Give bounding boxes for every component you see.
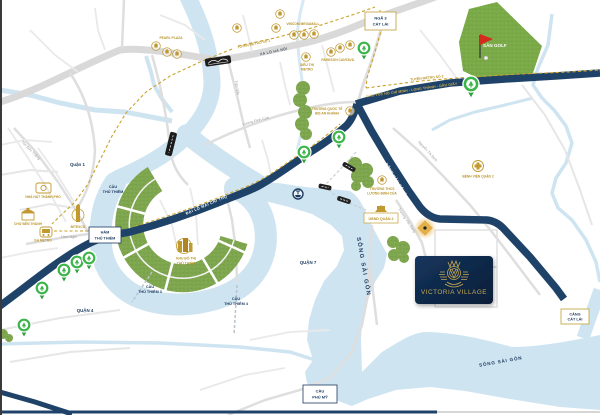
svg-text:SIÊU THỊ: SIÊU THỊ [300, 62, 314, 67]
svg-text:TRƯỜNG QUỐC TẾ: TRƯỜNG QUỐC TẾ [312, 106, 344, 111]
svg-text:CHỢ BẾN THÀNH: CHỢ BẾN THÀNH [14, 221, 43, 226]
svg-text:PHÚ MỸ: PHÚ MỸ [312, 395, 328, 400]
svg-text:NHÀ HÁT THÀNH PHỐ: NHÀ HÁT THÀNH PHỐ [25, 194, 61, 199]
svg-text:CẦU: CẦU [146, 285, 154, 289]
svg-text:QUẬN 7: QUẬN 7 [300, 260, 317, 265]
svg-text:BIS AN KHÁNH: BIS AN KHÁNH [315, 111, 339, 116]
svg-text:SÂN GOLF: SÂN GOLF [483, 42, 507, 48]
svg-text:CÁT LÁI: CÁT LÁI [373, 22, 389, 27]
svg-text:Hàm Nghi: Hàm Nghi [61, 235, 77, 239]
svg-text:CẢNG: CẢNG [569, 312, 580, 317]
svg-text:CÁT LÁI: CÁT LÁI [568, 317, 583, 322]
svg-text:HẦM: HẦM [101, 231, 110, 235]
svg-text:BITEXCO: BITEXCO [71, 225, 86, 229]
svg-text:VINCOM MEGAMALL: VINCOM MEGAMALL [286, 22, 319, 26]
svg-text:THỦ THIÊM: THỦ THIÊM [95, 236, 116, 241]
svg-text:QUẬN 4: QUẬN 4 [77, 308, 94, 313]
svg-text:BỆNH VIỆN QUẬN 2: BỆNH VIỆN QUẬN 2 [462, 174, 493, 179]
svg-text:CẦU: CẦU [316, 389, 325, 394]
svg-text:THỦ THIÊM: THỦ THIÊM [103, 189, 124, 194]
svg-text:NGÃ 3: NGÃ 3 [374, 16, 387, 21]
svg-text:THỦ THIÊM 4: THỦ THIÊM 4 [224, 301, 249, 306]
svg-text:THỦ THIÊM 3: THỦ THIÊM 3 [138, 289, 162, 294]
svg-text:CẦU: CẦU [232, 297, 240, 301]
svg-text:METRO: METRO [301, 68, 313, 72]
svg-text:TRƯỜNG THCS: TRƯỜNG THCS [370, 186, 396, 191]
svg-text:CẦU: CẦU [109, 185, 117, 189]
svg-text:PEARL PLAZA: PEARL PLAZA [159, 36, 183, 40]
svg-text:UBND QUẬN 2: UBND QUẬN 2 [369, 216, 394, 221]
svg-text:PARKSON CANTAVIL: PARKSON CANTAVIL [321, 58, 354, 62]
svg-text:THỦ THIÊM: THỦ THIÊM [177, 261, 196, 266]
svg-text:GA METRO: GA METRO [34, 239, 52, 243]
svg-text:LƯƠNG ĐỊNH CỦA: LƯƠNG ĐỊNH CỦA [367, 191, 397, 196]
svg-text:KHU ĐÔ THỊ: KHU ĐÔ THỊ [176, 256, 196, 261]
svg-text:VICTORIA VILLAGE: VICTORIA VILLAGE [421, 289, 487, 296]
svg-text:Quận 1: Quận 1 [70, 162, 85, 167]
